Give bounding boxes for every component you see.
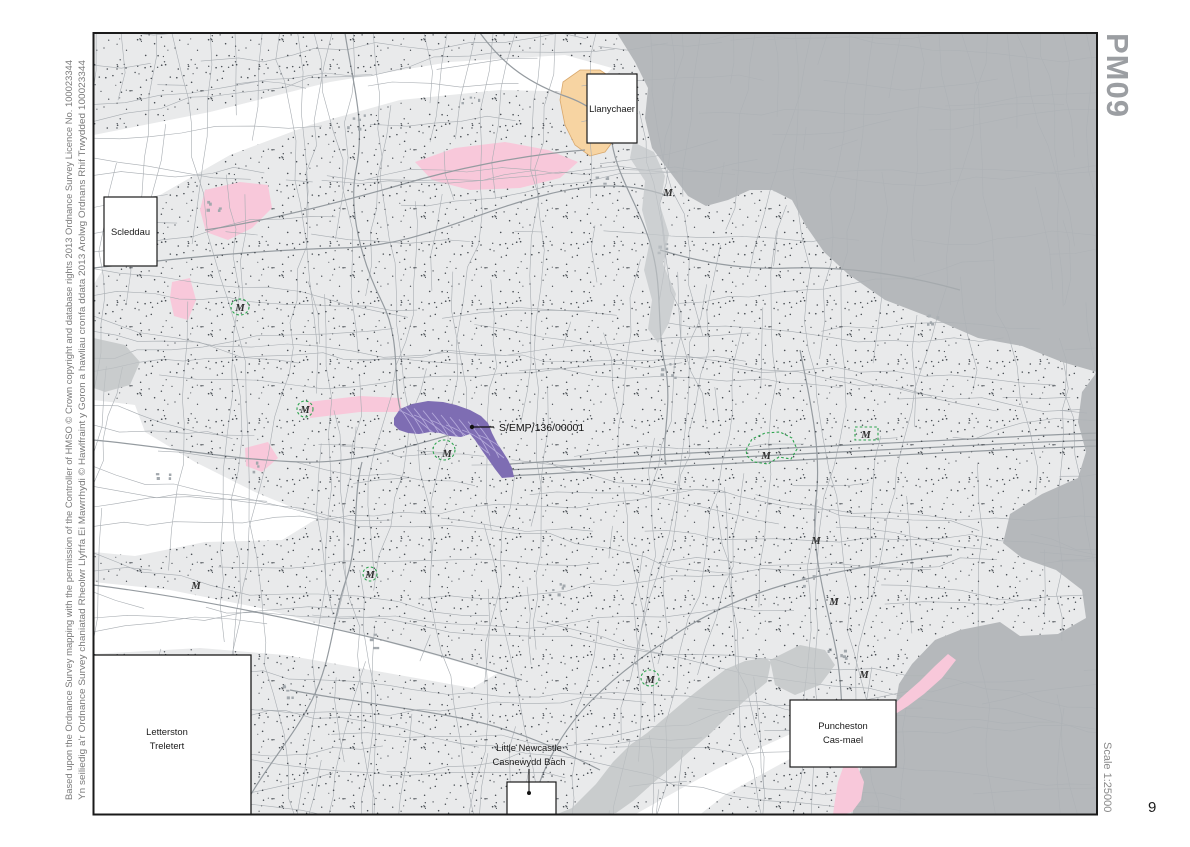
svg-text:M: M [441, 449, 452, 460]
svg-text:Llanychaer: Llanychaer [589, 103, 635, 114]
svg-text:Scleddau: Scleddau [111, 226, 150, 237]
svg-text:M: M [364, 570, 375, 581]
svg-text:Puncheston: Puncheston [818, 720, 868, 731]
svg-text:PM09: PM09 [1100, 33, 1135, 118]
svg-text:M: M [858, 670, 869, 681]
svg-text:Cas-mael: Cas-mael [823, 734, 863, 745]
svg-text:Based upon the Ordnance Survey: Based upon the Ordnance Survey mapping w… [64, 60, 74, 800]
svg-text:M: M [644, 675, 655, 686]
svg-text:S/EMP/136/00001: S/EMP/136/00001 [499, 422, 584, 434]
svg-text:M: M [190, 581, 201, 592]
svg-text:Letterston: Letterston [146, 726, 188, 737]
svg-text:Scale 1:25000: Scale 1:25000 [1101, 742, 1113, 812]
svg-text:9: 9 [1148, 799, 1156, 816]
svg-text:M: M [299, 405, 310, 416]
svg-text:M: M [662, 188, 673, 199]
svg-text:Casnewydd Bach: Casnewydd Bach [493, 756, 566, 767]
svg-text:Treletert: Treletert [150, 740, 185, 751]
svg-text:Little Newcastle: Little Newcastle [496, 742, 562, 753]
svg-text:Yn seiliedig a'r Ordnance Surv: Yn seiliedig a'r Ordnance Survey chaniat… [77, 60, 87, 800]
svg-text:M: M [828, 597, 839, 608]
svg-text:M: M [760, 451, 771, 462]
svg-text:M: M [810, 536, 821, 547]
svg-text:M: M [234, 303, 245, 314]
svg-text:M: M [860, 430, 871, 441]
